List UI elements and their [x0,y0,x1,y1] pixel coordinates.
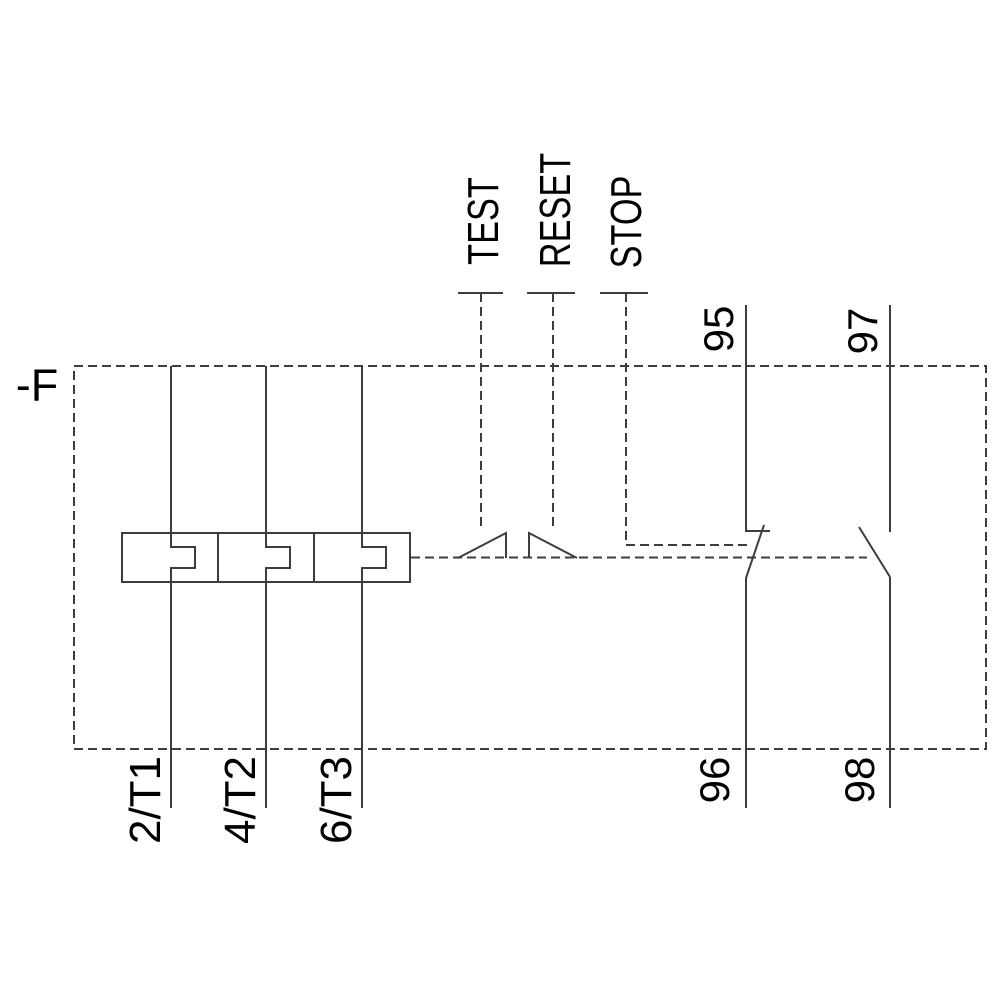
terminal-97-label: 97 [842,308,884,355]
no-contact-moving-arm [859,527,890,577]
overload-relay-schematic: -F TEST RESET STOP 95 97 96 98 2/T1 4/T2… [0,0,1000,1000]
terminal-2T1-label: 2/T1 [124,756,168,844]
nc-contact-moving-arm [746,525,764,578]
test-button-label: TEST [462,177,506,265]
terminal-4T2-label: 4/T2 [219,756,263,844]
terminal-96-label: 96 [694,757,736,804]
schematic-linework [0,0,1000,1000]
phase3-conductor-line [362,366,386,808]
phase1-conductor-line [171,366,195,808]
terminal-98-label: 98 [839,757,881,804]
reset-button-label: RESET [534,153,578,267]
terminal-95-label: 95 [698,306,740,353]
nc-contact-upper-line [746,305,770,531]
reset-wedge-symbol [529,533,577,558]
dashed-linework-group [74,293,986,749]
test-wedge-symbol [458,533,506,558]
solid-linework-group [122,293,890,808]
device-designation-label: -F [16,363,58,408]
phase2-conductor-line [266,366,290,808]
terminal-6T3-label: 6/T3 [315,756,359,844]
stop-button-label: STOP [605,176,649,269]
